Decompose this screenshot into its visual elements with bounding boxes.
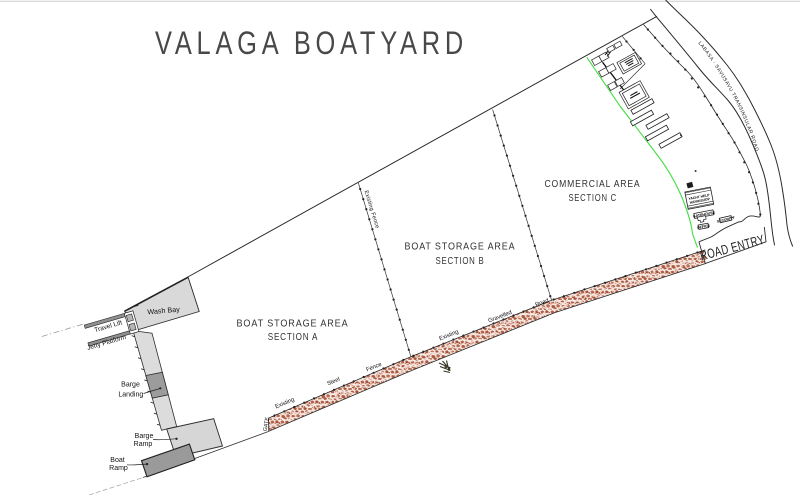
svg-text:Barge: Barge bbox=[135, 433, 154, 440]
svg-text:SECTION A: SECTION A bbox=[268, 332, 319, 343]
svg-text:Boat: Boat bbox=[110, 457, 124, 464]
svg-text:COMMERCIAL AREA: COMMERCIAL AREA bbox=[545, 179, 641, 190]
svg-text:SECTION B: SECTION B bbox=[436, 256, 485, 267]
svg-text:SECTION C: SECTION C bbox=[568, 193, 617, 204]
svg-text:Landing: Landing bbox=[118, 391, 143, 398]
svg-text:VALAGA BOATYARD: VALAGA BOATYARD bbox=[155, 25, 468, 61]
svg-text:Ramp: Ramp bbox=[134, 441, 153, 448]
svg-text:BOAT STORAGE AREA: BOAT STORAGE AREA bbox=[237, 318, 349, 329]
svg-text:BOAT STORAGE AREA: BOAT STORAGE AREA bbox=[405, 242, 516, 253]
svg-text:Barge: Barge bbox=[121, 382, 140, 389]
svg-text:Ramp: Ramp bbox=[109, 465, 128, 472]
